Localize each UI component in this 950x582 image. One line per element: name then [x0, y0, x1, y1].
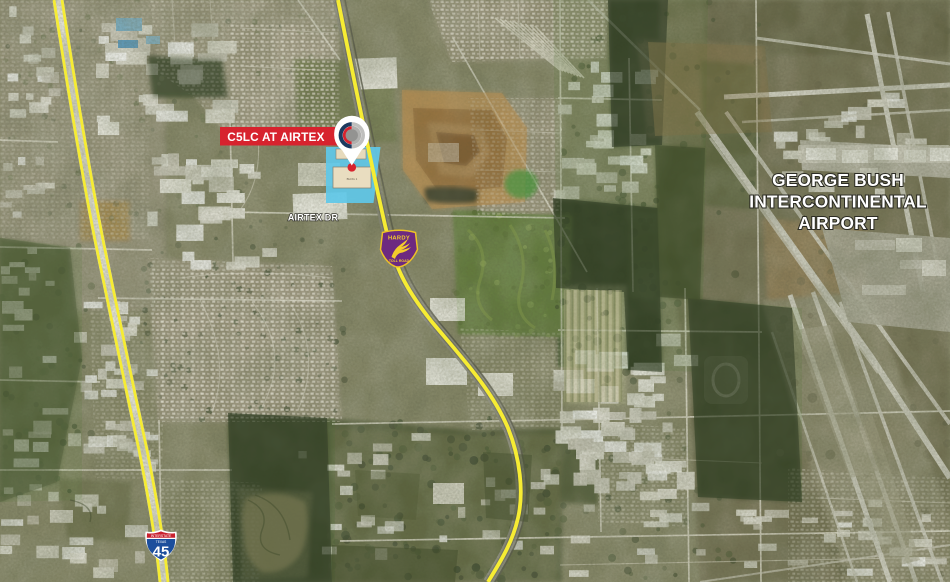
svg-text:C5LC AT AIRTEX: C5LC AT AIRTEX — [227, 130, 324, 144]
svg-text:AIRTEX DR: AIRTEX DR — [288, 213, 339, 223]
svg-text:AIRPORT: AIRPORT — [798, 213, 877, 233]
svg-text:BLDG 1: BLDG 1 — [347, 177, 358, 181]
svg-text:GEORGE BUSH: GEORGE BUSH — [772, 170, 904, 190]
svg-text:INTERSTATE: INTERSTATE — [151, 534, 172, 538]
svg-text:TOLL ROAD: TOLL ROAD — [389, 259, 410, 263]
svg-text:45: 45 — [153, 544, 170, 561]
svg-text:INTERCONTINENTAL: INTERCONTINENTAL — [749, 192, 927, 212]
